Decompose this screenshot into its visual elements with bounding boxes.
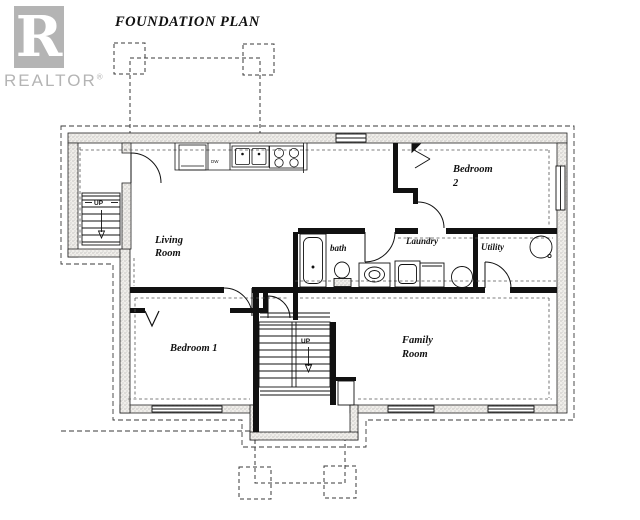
washer-icon (395, 261, 420, 287)
fridge-icon (179, 145, 206, 170)
water-heater-valve (548, 254, 551, 257)
deck-dashed-outline-bottom (239, 440, 356, 499)
central-staircase (259, 313, 354, 405)
room-label-bedroom1: Bedroom 1 (169, 343, 218, 354)
dishwasher-label: DW (211, 159, 219, 164)
room-label-utility: Utility (481, 242, 505, 252)
patio-door-swing-icon (131, 153, 161, 183)
bath-fixtures (300, 234, 390, 287)
bathtub-icon (300, 234, 326, 287)
stairs-up-label-center: UP (301, 338, 311, 345)
room-label-bedroom2-1: Bedroom (452, 164, 493, 175)
stove-icon (270, 146, 304, 168)
room-label-bedroom2-2: 2 (452, 178, 459, 189)
toilet-icon (334, 262, 351, 287)
room-label-laundry: Laundry (405, 236, 439, 246)
kitchen-sink-icon (232, 146, 269, 167)
bath-door-swing-icon (365, 232, 395, 262)
room-label-family-1: Family (401, 335, 433, 346)
room-label-family-2: Room (401, 349, 428, 360)
window-icon-top (336, 134, 366, 142)
vanity-sink-icon (359, 263, 390, 287)
room-label-living-2: Room (154, 248, 181, 259)
window-icon-bottom-left (152, 406, 222, 412)
deck-dashed-outline-top (114, 43, 274, 135)
window-icon-bottom-mid (388, 406, 434, 412)
furnace-icon (452, 267, 473, 288)
kitchen-fixtures (175, 143, 307, 173)
bedroom1-closet-bifold-icon (145, 311, 159, 326)
bedroom2-door-swing-icon (418, 202, 444, 228)
interior-walls (130, 143, 557, 432)
hall-door-swing-icon (268, 296, 290, 318)
exterior-walls (68, 133, 567, 440)
window-icon-bottom-right (488, 406, 534, 412)
room-label-living-1: Living (154, 235, 183, 246)
floor-plan-drawing: UP UP (0, 0, 640, 520)
room-label-bath: bath (330, 243, 347, 253)
window-icons (152, 134, 565, 412)
dryer-icon (420, 263, 444, 287)
foundation-plan-page: R REALTOR® FOUNDATION PLAN (0, 0, 640, 520)
utility-door-swing-icon (485, 262, 511, 288)
stairs-up-label-left: UP (94, 200, 104, 207)
window-icon-right (556, 166, 565, 210)
closet-door-icon (412, 144, 430, 168)
